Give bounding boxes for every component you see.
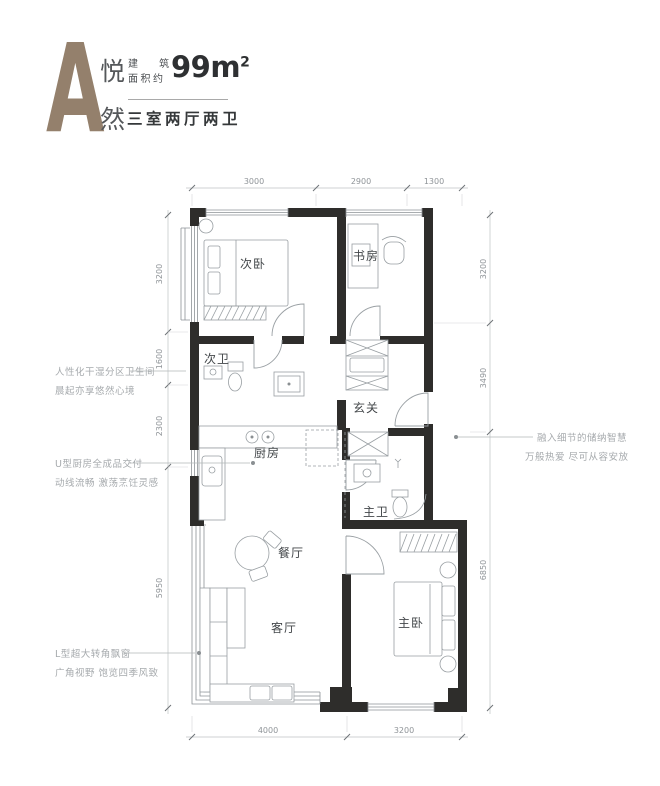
annotation-bay-line1: L型超大转角飘窗	[55, 648, 131, 660]
furniture-living	[200, 588, 294, 702]
room-label-study: 书房	[353, 248, 379, 263]
door-secondary-bath	[254, 340, 282, 368]
annotation-bath: 人性化干湿分区卫生间 晨起亦享悠然心境	[55, 366, 186, 397]
bay-window-secondary-bedroom	[181, 226, 199, 322]
dimension-bottom: 4000 3200	[186, 716, 468, 740]
window-living-bottom	[368, 702, 434, 712]
annotation-storage-line1: 融入细节的储纳智慧	[537, 432, 627, 444]
dim-top-2: 2900	[351, 177, 371, 186]
dim-left-4: 5950	[155, 578, 164, 598]
master-bath-storage	[348, 432, 388, 456]
dim-left-3: 2300	[155, 416, 164, 436]
annotation-kitchen-line2: 动线流畅 激荡烹饪灵感	[55, 477, 159, 489]
room-label-foyer: 玄关	[353, 400, 379, 415]
room-label-master-bedroom: 主卧	[398, 616, 424, 630]
furniture-secondary-bath	[204, 362, 243, 391]
door-secondary-bedroom	[272, 304, 304, 336]
annotation-kitchen-line1: U型厨房全成品交付	[55, 458, 142, 470]
dim-bottom-2: 3200	[394, 726, 414, 735]
dim-right-3: 6850	[479, 560, 488, 580]
dim-top-3: 1300	[424, 177, 444, 186]
dim-right-1: 3200	[479, 259, 488, 279]
dimension-left: 3200 1600 2300 5950	[155, 210, 188, 714]
window-study-top	[346, 208, 422, 217]
annotation-bath-line2: 晨起亦享悠然心境	[55, 385, 135, 397]
room-label-secondary-bath: 次卫	[204, 352, 230, 366]
foyer-storage-cabinet	[346, 340, 388, 390]
dim-top-1: 3000	[244, 177, 264, 186]
dimension-top: 3000 2900 1300	[186, 177, 468, 206]
room-label-master-bath: 主卫	[363, 505, 389, 519]
annotation-bath-line1: 人性化干湿分区卫生间	[55, 366, 155, 378]
annotation-storage-line2: 万般热爱 尽可从容安放	[525, 451, 629, 463]
dim-right-2: 3490	[479, 368, 488, 388]
dim-bottom-1: 4000	[258, 726, 278, 735]
room-label-secondary-bedroom: 次卧	[240, 257, 266, 271]
door-master-bedroom	[346, 536, 384, 574]
annotation-storage: 融入细节的储纳智慧 万般热爱 尽可从容安放	[454, 432, 629, 463]
window-secondary-bedroom-top	[206, 208, 288, 217]
door-entry	[395, 393, 428, 426]
floor-plan: 次卧 书房 次卫 玄关 厨房 主卫 餐厅 客厅 主卧 3000 2900 130…	[0, 0, 660, 786]
annotation-bay-window: L型超大转角飘窗 广角视野 饱览四季风致	[55, 648, 201, 679]
annotation-bay-line2: 广角视野 饱览四季风致	[55, 667, 159, 679]
door-study	[350, 306, 380, 336]
room-label-dining: 餐厅	[278, 545, 304, 560]
room-label-kitchen: 厨房	[254, 445, 280, 460]
room-label-living: 客厅	[271, 620, 297, 635]
furniture-dining	[235, 530, 282, 582]
dim-left-2: 1600	[155, 349, 164, 369]
dim-left-1: 3200	[155, 264, 164, 284]
vanity-outside-bath	[274, 372, 304, 396]
furniture-kitchen	[199, 426, 345, 520]
furniture-master-bedroom	[394, 532, 457, 672]
